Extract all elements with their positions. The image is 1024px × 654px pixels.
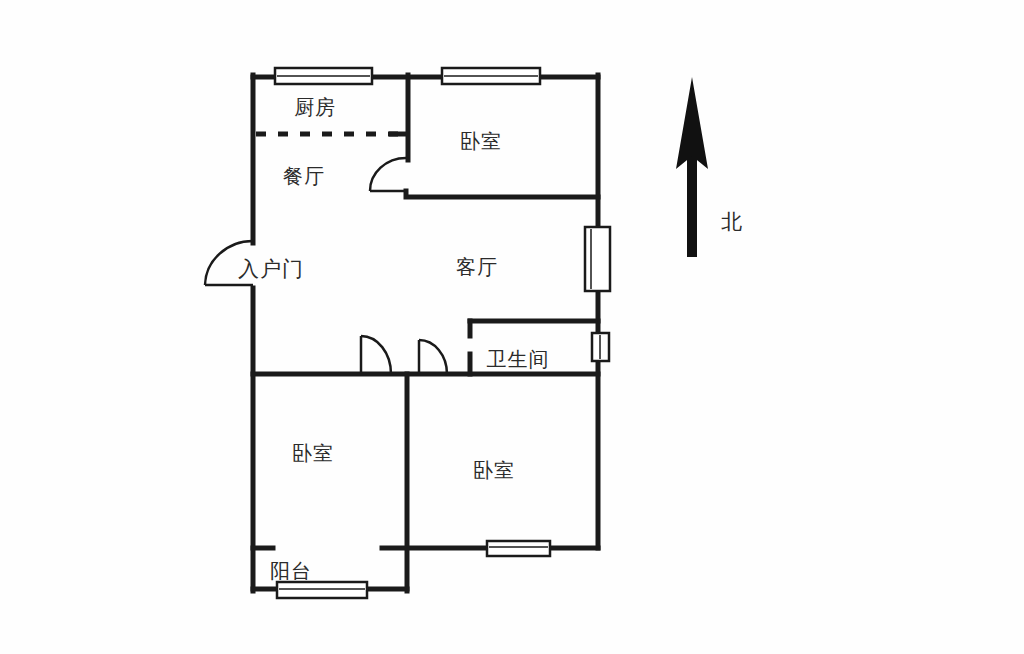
north-arrow-icon bbox=[676, 77, 708, 257]
window-bathroom-east bbox=[592, 333, 609, 361]
label-bedroom-top: 卧室 bbox=[460, 128, 502, 155]
walls bbox=[253, 75, 598, 591]
label-north: 北 bbox=[721, 208, 743, 236]
label-entry-door: 入户门 bbox=[238, 255, 304, 283]
windows bbox=[275, 68, 610, 598]
label-bedroom-left: 卧室 bbox=[292, 440, 334, 467]
label-bathroom: 卫生间 bbox=[487, 346, 550, 373]
floor-plan-drawing bbox=[0, 0, 1024, 654]
window-kitchen-north bbox=[275, 68, 372, 84]
bedroom-top-door-swing bbox=[370, 158, 406, 191]
label-kitchen: 厨房 bbox=[294, 94, 336, 121]
floor-plan-canvas: 厨房 餐厅 卧室 客厅 入户门 卫生间 卧室 卧室 阳台 北 bbox=[0, 0, 1024, 654]
label-bedroom-right: 卧室 bbox=[473, 457, 515, 484]
wall-bedroom-top-south bbox=[406, 191, 598, 197]
window-bedroom-top-north bbox=[442, 68, 540, 84]
label-living: 客厅 bbox=[456, 254, 498, 281]
bedroom-right-door-swing bbox=[419, 340, 447, 374]
window-bedroom-right-south bbox=[487, 541, 550, 556]
bedroom-left-door-swing bbox=[361, 336, 391, 374]
window-living-east bbox=[585, 227, 610, 291]
label-dining: 餐厅 bbox=[283, 163, 325, 190]
label-balcony: 阳台 bbox=[270, 558, 312, 585]
